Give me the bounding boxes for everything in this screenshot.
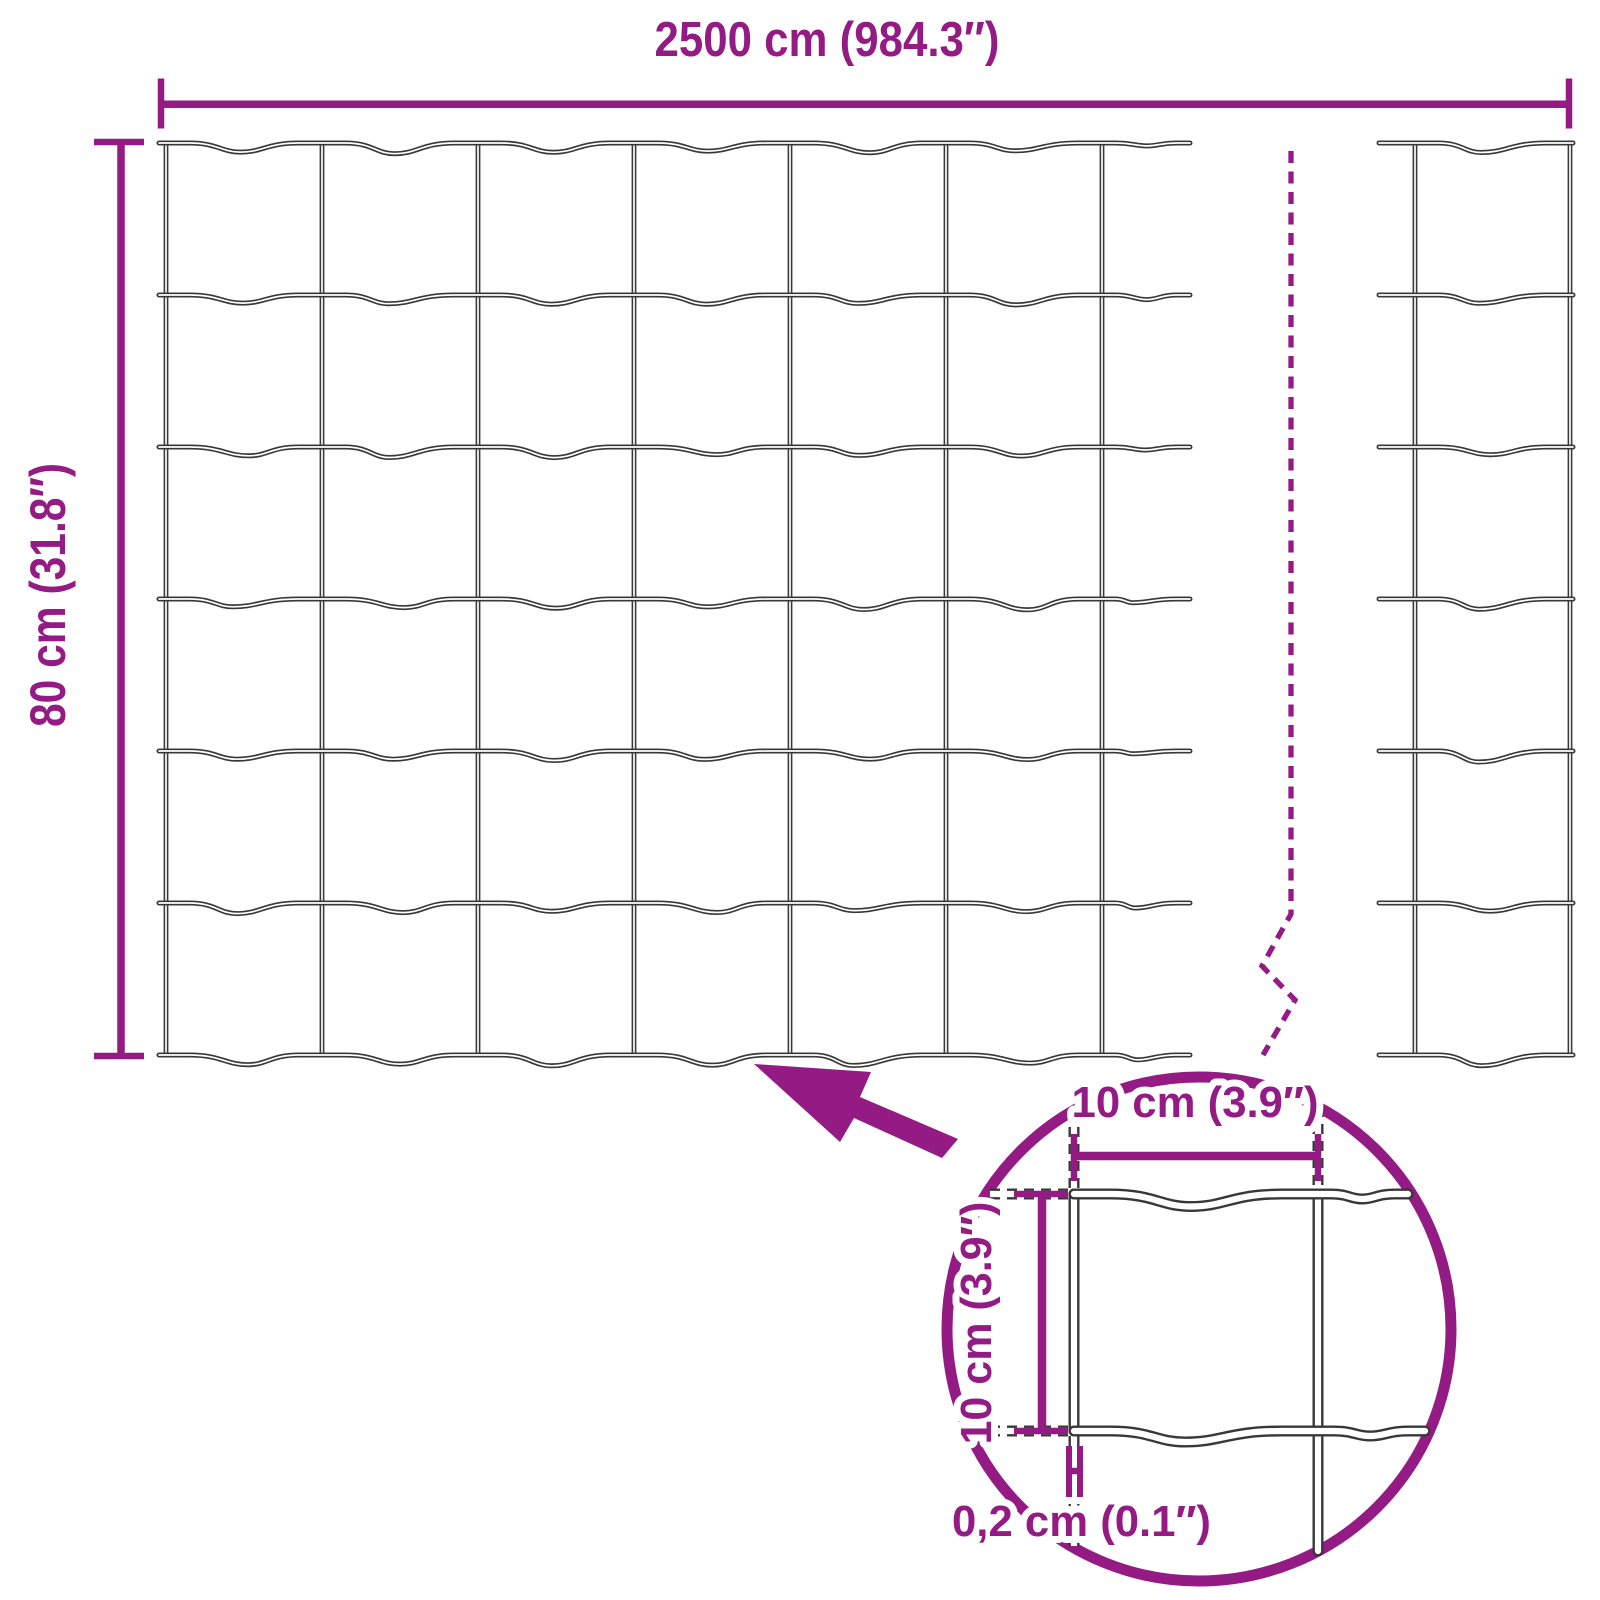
svg-text:80 cm (31.8″): 80 cm (31.8″) — [20, 463, 76, 727]
svg-text:2500 cm (984.3″): 2500 cm (984.3″) — [655, 13, 1000, 67]
svg-text:0,2 cm (0.1″): 0,2 cm (0.1″) — [952, 1497, 1211, 1546]
svg-text:10 cm (3.9″): 10 cm (3.9″) — [1072, 1078, 1319, 1127]
svg-text:10 cm (3.9″): 10 cm (3.9″) — [952, 1202, 1001, 1445]
